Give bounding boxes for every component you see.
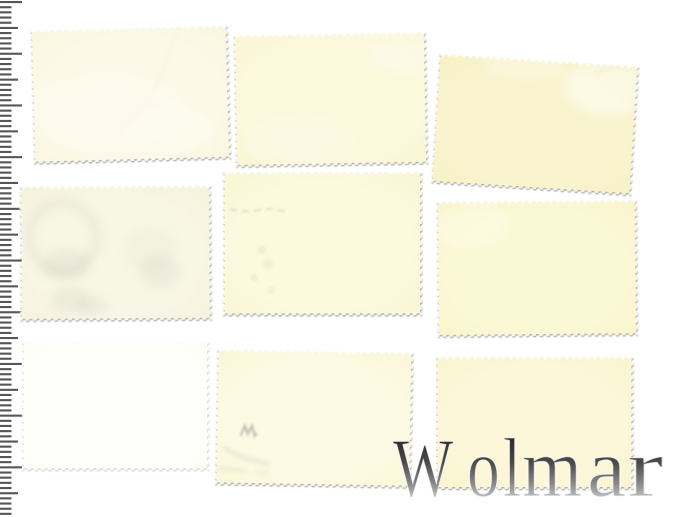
- svg-text:a: a: [587, 421, 626, 515]
- svg-text:l: l: [503, 422, 521, 515]
- svg-text:m: m: [522, 422, 582, 515]
- svg-text:r: r: [627, 422, 663, 515]
- svg-text:o: o: [467, 422, 500, 515]
- svg-text:W: W: [393, 423, 454, 515]
